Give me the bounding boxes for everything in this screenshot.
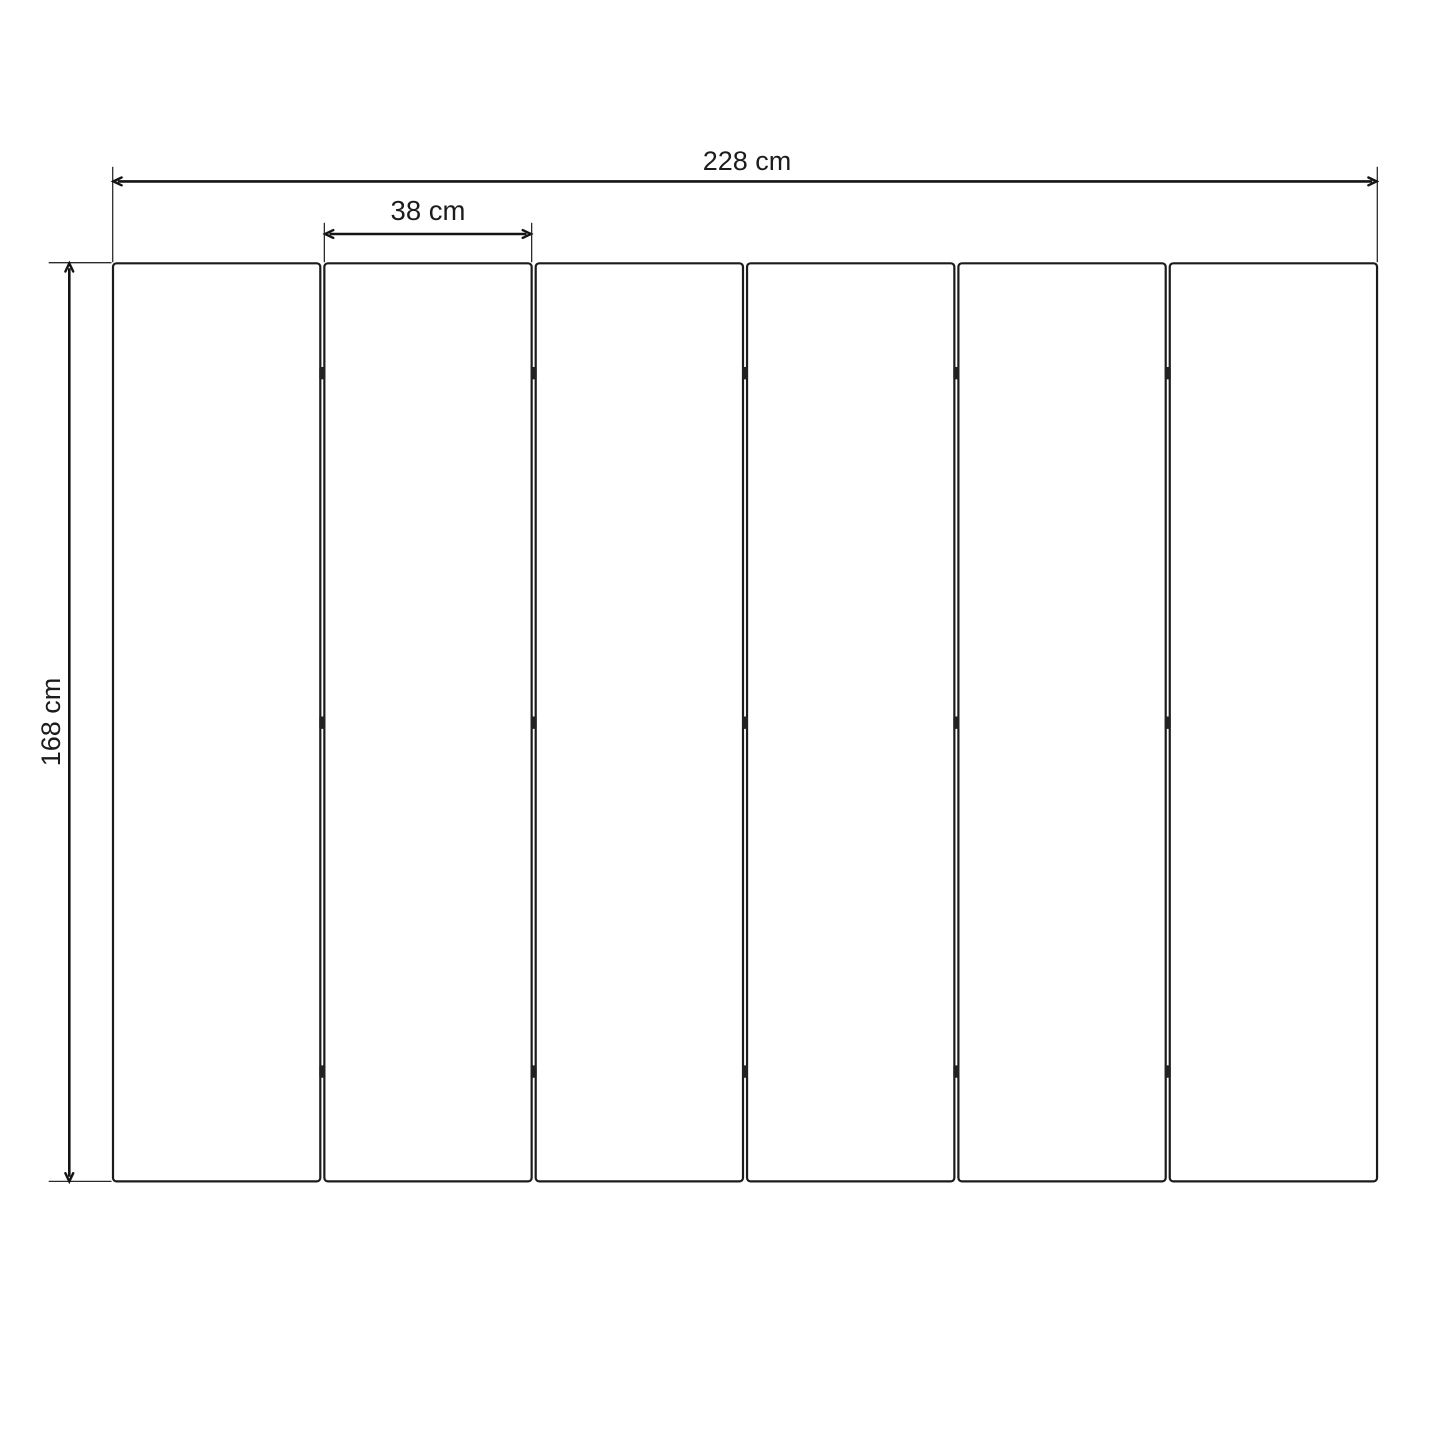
svg-text:228 cm: 228 cm xyxy=(703,146,792,176)
svg-text:168 cm: 168 cm xyxy=(36,678,66,767)
svg-text:38 cm: 38 cm xyxy=(391,195,466,226)
